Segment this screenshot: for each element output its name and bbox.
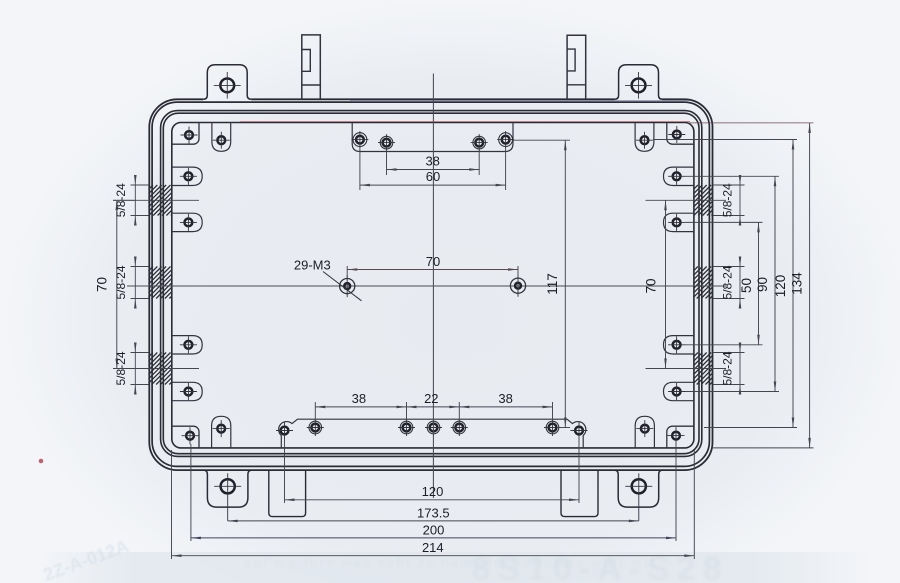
svg-text:5/8-24: 5/8-24	[721, 351, 735, 385]
svg-text:29-M3: 29-M3	[294, 257, 331, 272]
svg-text:173.5: 173.5	[417, 505, 450, 520]
svg-text:90: 90	[755, 277, 770, 292]
svg-text:8S10-A-S28: 8S10-A-S28	[471, 550, 728, 583]
svg-text:38: 38	[352, 391, 366, 406]
svg-text:22: 22	[424, 391, 438, 406]
svg-text:5/8-24: 5/8-24	[114, 265, 128, 299]
svg-text:60: 60	[426, 169, 440, 184]
svg-text:120: 120	[773, 275, 788, 298]
svg-text:70: 70	[95, 277, 110, 292]
svg-text:5/8-24: 5/8-24	[721, 265, 735, 299]
svg-text:214: 214	[422, 540, 444, 555]
svg-text:120: 120	[422, 484, 444, 499]
svg-text:134: 134	[790, 272, 805, 295]
svg-text:200: 200	[423, 522, 445, 537]
svg-text:38: 38	[498, 391, 512, 406]
svg-text:70: 70	[426, 254, 440, 269]
svg-text:70: 70	[643, 278, 658, 293]
svg-text:38: 38	[425, 154, 439, 169]
svg-text:50: 50	[739, 278, 754, 293]
svg-text:5/8-24: 5/8-24	[721, 183, 735, 217]
svg-text:117: 117	[545, 273, 560, 295]
